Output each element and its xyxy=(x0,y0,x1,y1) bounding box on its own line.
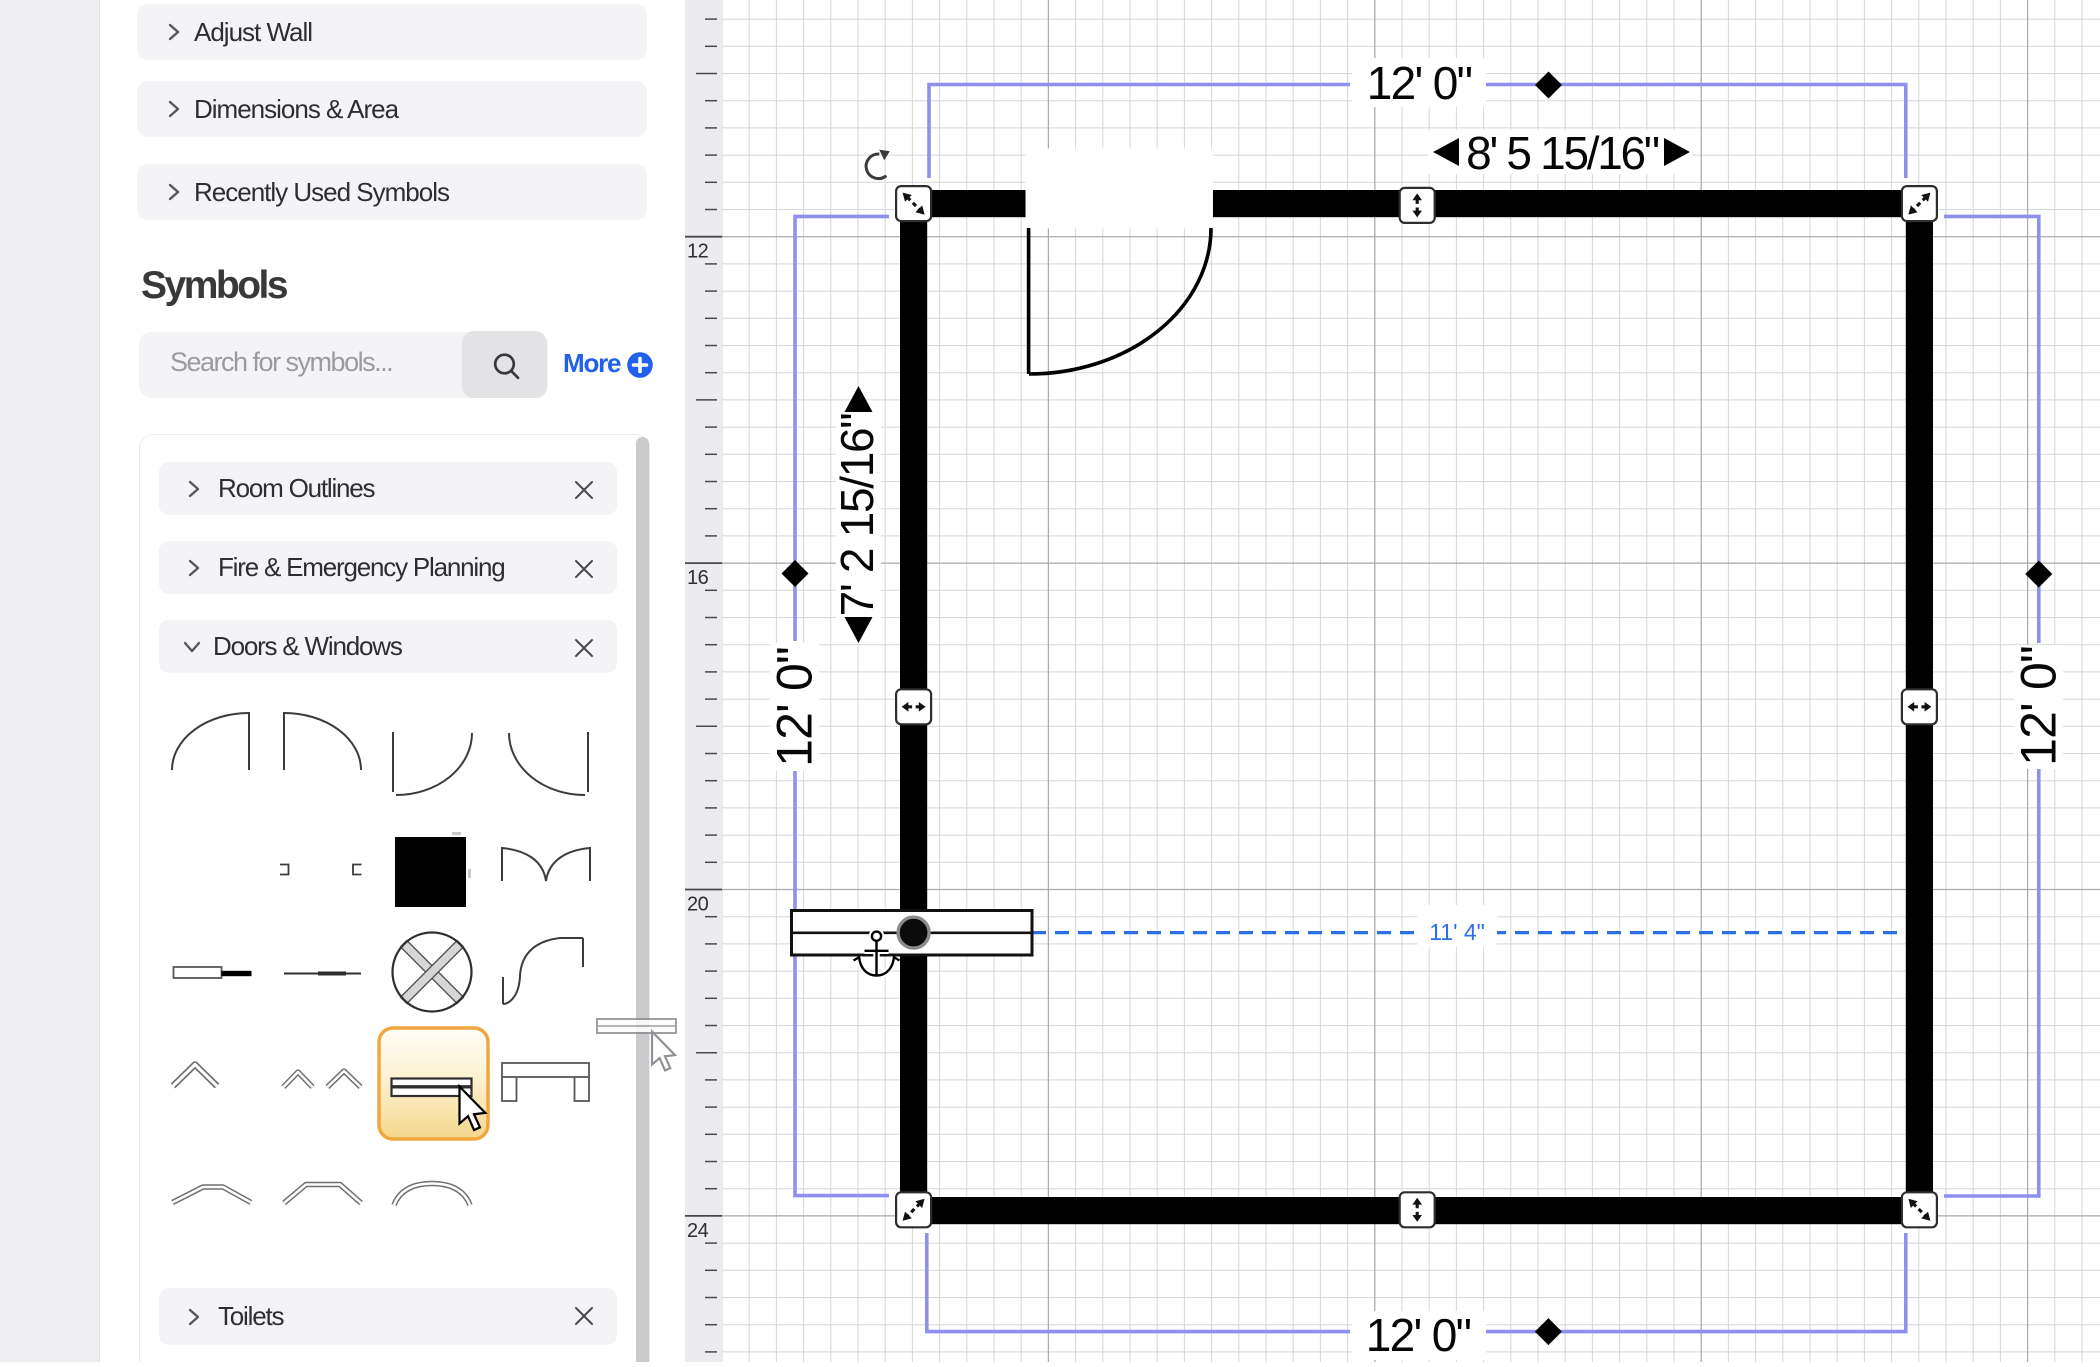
svg-text:11' 4": 11' 4" xyxy=(1429,919,1485,945)
svg-text:12' 0": 12' 0" xyxy=(1366,1309,1471,1361)
svg-text:12: 12 xyxy=(687,241,709,263)
svg-text:24: 24 xyxy=(687,1220,709,1242)
svg-text:12' 0": 12' 0" xyxy=(767,647,823,767)
svg-text:12' 0": 12' 0" xyxy=(2011,646,2067,766)
svg-text:7' 2 15/16": 7' 2 15/16" xyxy=(831,414,883,617)
svg-text:16: 16 xyxy=(687,567,709,589)
svg-text:20: 20 xyxy=(687,894,709,916)
svg-text:12' 0": 12' 0" xyxy=(1367,57,1472,109)
svg-text:8' 5 15/16": 8' 5 15/16" xyxy=(1466,127,1659,179)
